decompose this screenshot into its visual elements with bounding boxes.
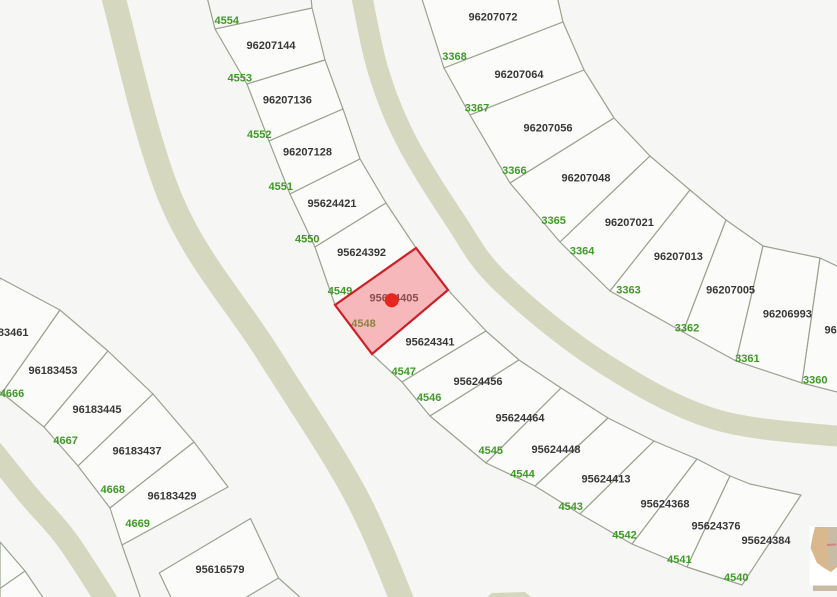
svg-text:4544: 4544 (510, 469, 535, 481)
svg-text:96183437: 96183437 (113, 446, 162, 458)
svg-text:96207144: 96207144 (247, 40, 297, 52)
svg-text:4668: 4668 (101, 484, 125, 496)
svg-text:96207056: 96207056 (524, 123, 573, 135)
svg-text:3365: 3365 (541, 215, 565, 227)
svg-text:96207128: 96207128 (283, 147, 332, 159)
svg-text:95624368: 95624368 (641, 499, 690, 511)
svg-text:3362: 3362 (675, 323, 699, 335)
svg-text:3364: 3364 (570, 245, 595, 257)
svg-text:95624376: 95624376 (692, 521, 741, 533)
svg-text:4543: 4543 (558, 501, 582, 513)
svg-text:4550: 4550 (295, 233, 319, 245)
svg-text:3366: 3366 (502, 165, 526, 177)
svg-text:96183429: 96183429 (148, 491, 197, 503)
svg-text:96183453: 96183453 (29, 365, 78, 377)
svg-text:96207048: 96207048 (562, 173, 611, 185)
svg-text:96183461: 96183461 (0, 327, 28, 339)
svg-text:4545: 4545 (479, 445, 503, 457)
svg-text:96207064: 96207064 (495, 69, 545, 81)
svg-text:96207136: 96207136 (263, 94, 312, 106)
svg-text:4666: 4666 (0, 388, 24, 400)
svg-text:95624448: 95624448 (532, 444, 581, 456)
svg-text:4553: 4553 (228, 73, 252, 85)
svg-text:95624384: 95624384 (742, 535, 792, 547)
svg-text:96207021: 96207021 (605, 217, 654, 229)
svg-text:96207005: 96207005 (706, 285, 755, 297)
svg-text:4547: 4547 (391, 366, 415, 378)
svg-text:96207013: 96207013 (654, 251, 703, 263)
svg-text:95616579: 95616579 (196, 564, 245, 576)
svg-text:96183445: 96183445 (73, 404, 122, 416)
svg-text:3360: 3360 (803, 375, 827, 387)
svg-text:95624341: 95624341 (406, 337, 455, 349)
svg-text:96206993: 96206993 (763, 309, 812, 321)
svg-text:3361: 3361 (735, 353, 759, 365)
svg-text:4667: 4667 (53, 435, 77, 447)
svg-text:4554: 4554 (215, 15, 240, 27)
svg-text:95624392: 95624392 (337, 247, 386, 259)
svg-text:95624456: 95624456 (454, 376, 503, 388)
svg-text:96206985: 96206985 (825, 325, 837, 337)
svg-text:3368: 3368 (442, 51, 466, 63)
svg-text:4552: 4552 (247, 129, 271, 141)
svg-text:4546: 4546 (417, 392, 441, 404)
svg-text:95624464: 95624464 (496, 413, 546, 425)
svg-text:4669: 4669 (125, 518, 149, 530)
svg-text:4551: 4551 (269, 181, 293, 193)
svg-text:3363: 3363 (616, 285, 640, 297)
svg-text:4540: 4540 (724, 572, 748, 584)
svg-text:95624413: 95624413 (582, 474, 631, 486)
svg-text:4542: 4542 (612, 530, 636, 542)
svg-text:4541: 4541 (667, 554, 691, 566)
svg-text:95624421: 95624421 (308, 198, 357, 210)
svg-text:96207072: 96207072 (469, 12, 518, 24)
svg-text:3367: 3367 (465, 103, 489, 115)
